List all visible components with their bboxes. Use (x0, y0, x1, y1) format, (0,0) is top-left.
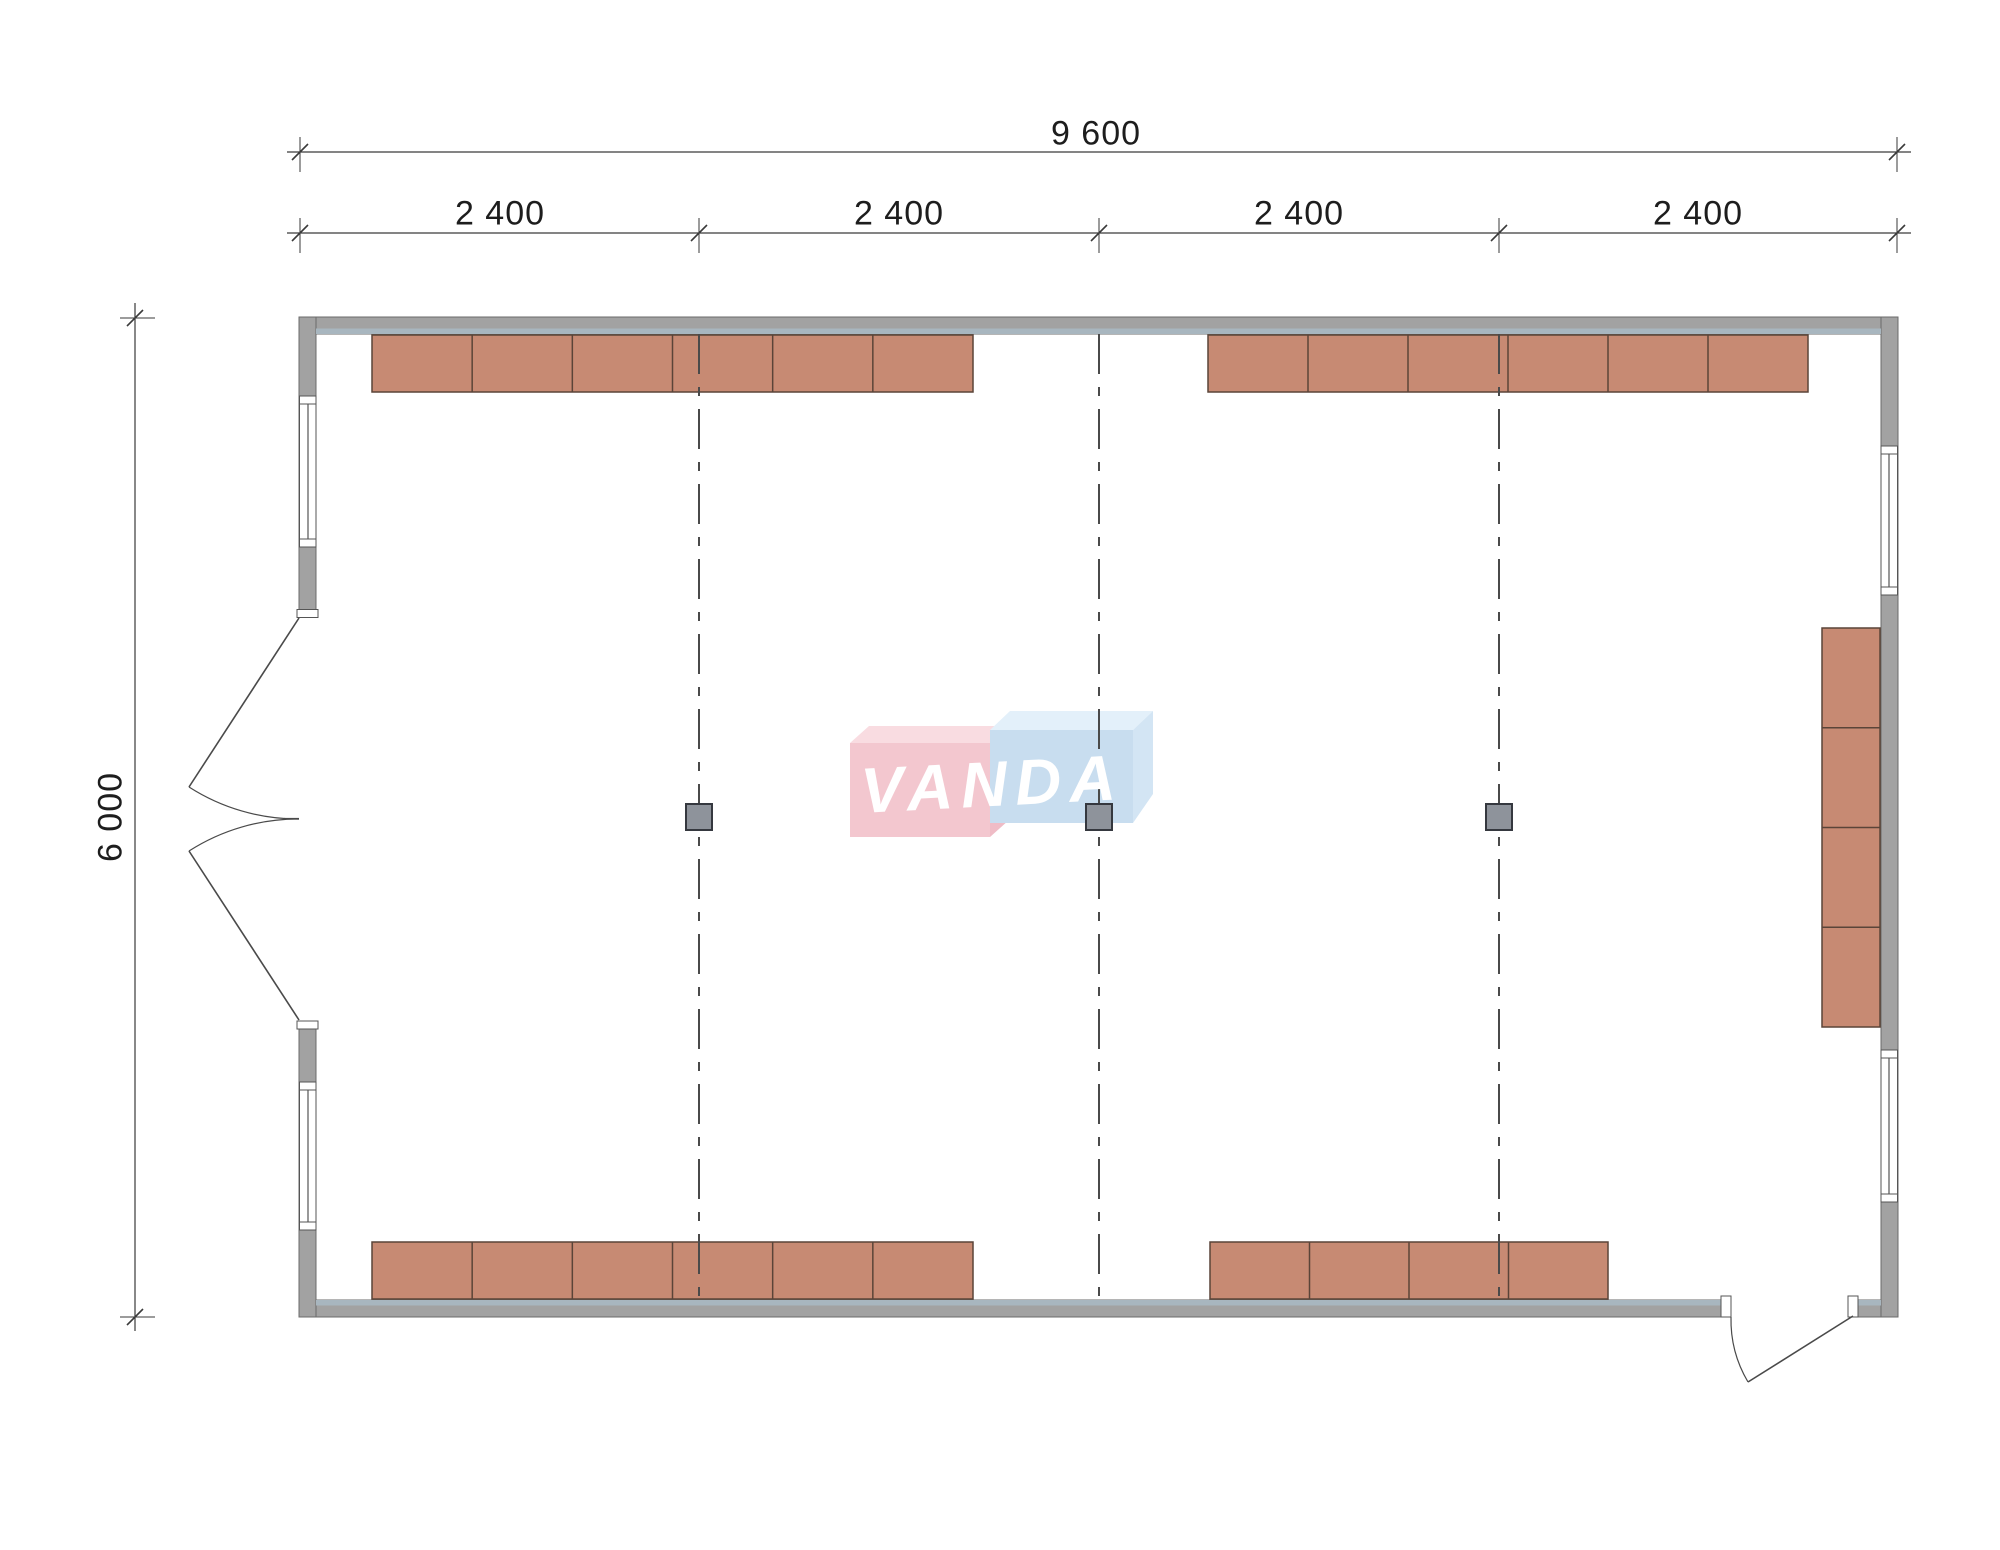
left-door-opening (299, 617, 317, 1021)
window-right-bottom-cap (1881, 1050, 1898, 1058)
door-jamb (297, 1021, 318, 1029)
left-door-upper-leaf (189, 618, 299, 787)
column-1 (686, 804, 712, 830)
dimension-label-total-height: 6 000 (92, 772, 131, 862)
door-jamb (297, 610, 318, 618)
left-door-upper-swing-arc (189, 787, 299, 819)
logo-pink-box-top (850, 726, 1009, 743)
window-right-bottom-cap (1881, 1194, 1898, 1202)
bottom-wall-inner-liner (316, 1300, 1881, 1306)
left-door-lower-leaf (189, 851, 299, 1020)
dimension-label-bay-2: 2 400 (854, 195, 944, 234)
bottom-door-leaf (1748, 1316, 1853, 1382)
logo-blue-box-side (1133, 711, 1153, 823)
dimension-label-total-width: 9 600 (1051, 115, 1141, 154)
floor-plan-page: VANDA 9 600 2 400 2 400 2 400 2 400 6 00… (0, 0, 2000, 1550)
dimension-label-bay-3: 2 400 (1254, 195, 1344, 234)
left-door-lower-swing-arc (189, 819, 299, 851)
bottom-door-swing-arc (1731, 1317, 1748, 1382)
dimension-label-bay-1: 2 400 (455, 195, 545, 234)
bottom-door-opening (1731, 1299, 1848, 1318)
logo-blue-box-top (990, 711, 1153, 730)
top-wall-inner-liner (316, 329, 1881, 335)
window-right-top-cap (1881, 446, 1898, 454)
window-left-bottom-cap (300, 1222, 317, 1230)
vanda-watermark-text: VANDA (859, 740, 1125, 828)
dimension-label-bay-4: 2 400 (1653, 195, 1743, 234)
window-left-bottom-cap (300, 1082, 317, 1090)
window-left-top-cap (300, 396, 317, 404)
column-3 (1486, 804, 1512, 830)
door-jamb (1721, 1296, 1731, 1317)
door-jamb (1848, 1296, 1858, 1317)
window-left-top-cap (300, 539, 317, 547)
window-right-top-cap (1881, 587, 1898, 595)
